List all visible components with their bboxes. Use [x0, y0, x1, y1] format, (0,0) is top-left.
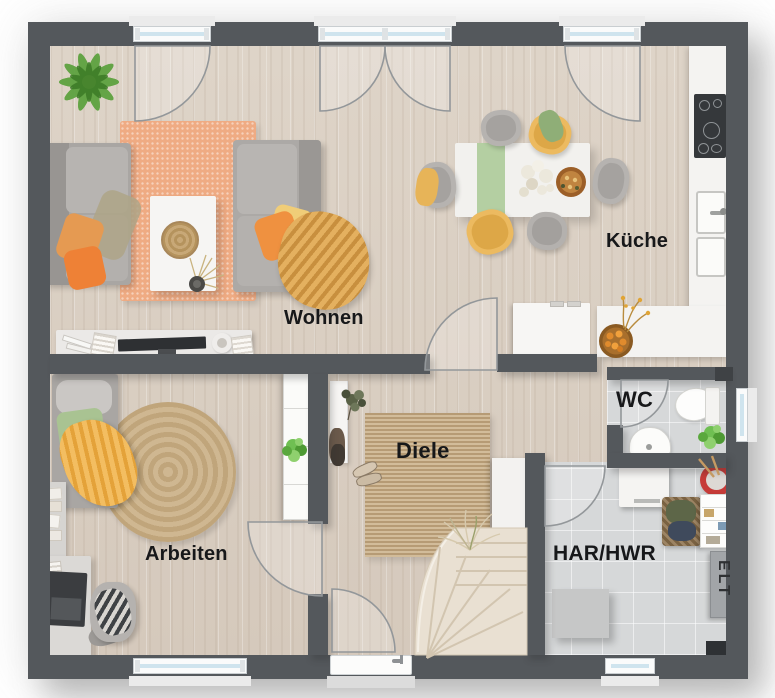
front-door-handle	[400, 655, 403, 664]
window-cap	[320, 28, 325, 40]
pillow-orange	[62, 244, 107, 291]
laptop-keyboard	[50, 597, 81, 621]
refrigerator-handle	[567, 301, 581, 307]
window-sill	[129, 676, 251, 686]
sofa-right-cushion	[237, 144, 297, 214]
table-runner	[477, 143, 505, 217]
outer-wall-left	[28, 22, 50, 679]
shelf-divider	[284, 484, 308, 485]
shelf-divider	[284, 446, 308, 447]
room-label-kueche: Küche	[606, 230, 668, 253]
window-sill	[601, 676, 659, 686]
dining-table	[455, 143, 590, 217]
window-cap	[135, 28, 140, 40]
window-cap	[135, 660, 140, 672]
refrigerator	[513, 303, 590, 357]
window-sill	[314, 16, 456, 26]
stair-wall-panel	[492, 458, 528, 534]
room-label-har-hwr: HAR/HWR	[553, 542, 656, 566]
wall-under-fridge	[497, 354, 597, 372]
woven-bowl	[161, 221, 199, 259]
cooktop-burner	[713, 99, 722, 108]
door-step	[327, 676, 415, 688]
room-label-elt: ELT	[714, 560, 732, 598]
window-cap	[634, 28, 639, 40]
window-cap	[204, 28, 209, 40]
floor-plan: Wohnen Küche Arbeiten Diele WC HAR/HWR E…	[0, 0, 775, 698]
wall-wc-left	[607, 425, 623, 455]
washing-machine-slot	[634, 499, 660, 503]
room-label-wohnen: Wohnen	[284, 307, 364, 330]
kitchen-sink	[696, 237, 726, 277]
room-label-wc: WC	[616, 387, 653, 413]
wall-wc-dark-stub	[715, 367, 733, 381]
cooktop-burner	[699, 100, 710, 111]
cooktop-burner	[698, 143, 709, 154]
wall-wc-hwr	[607, 453, 726, 468]
window-sill	[748, 388, 757, 442]
wall-arbeiten-diele-upper	[308, 374, 328, 524]
refrigerator-handle	[550, 301, 564, 307]
window-glass	[140, 664, 240, 668]
window-sill	[559, 16, 645, 26]
wall-diele-hwr	[525, 453, 545, 655]
window-cap	[240, 660, 245, 672]
window-cap	[565, 28, 570, 40]
wall-arbeiten-diele-lower	[308, 594, 328, 655]
shelf-divider	[284, 408, 308, 409]
shelf-item	[704, 509, 714, 517]
wc-sink-faucet	[646, 444, 652, 450]
cooktop-burner	[703, 122, 720, 139]
laundry-clothes	[668, 521, 696, 541]
window-cap	[445, 28, 450, 40]
window-glass	[570, 32, 634, 36]
window-mullion	[382, 28, 388, 40]
cooktop-burner	[711, 144, 722, 153]
room-label-arbeiten: Arbeiten	[145, 543, 228, 566]
hanging-coats	[331, 444, 345, 466]
window-glass	[611, 664, 649, 668]
window-glass	[740, 394, 744, 436]
hall-rug	[365, 413, 490, 557]
window-glass	[140, 32, 204, 36]
room-label-diele: Diele	[396, 438, 450, 464]
toilet-tank	[705, 387, 720, 425]
storage-cube	[552, 589, 609, 638]
tape-roll	[212, 333, 232, 353]
wall-wohnen-arbeiten	[50, 354, 430, 374]
shelf-item	[706, 536, 720, 544]
window-sill	[129, 16, 215, 26]
kitchen-counter-bottom	[597, 306, 726, 357]
wall-wc-top	[607, 367, 726, 380]
